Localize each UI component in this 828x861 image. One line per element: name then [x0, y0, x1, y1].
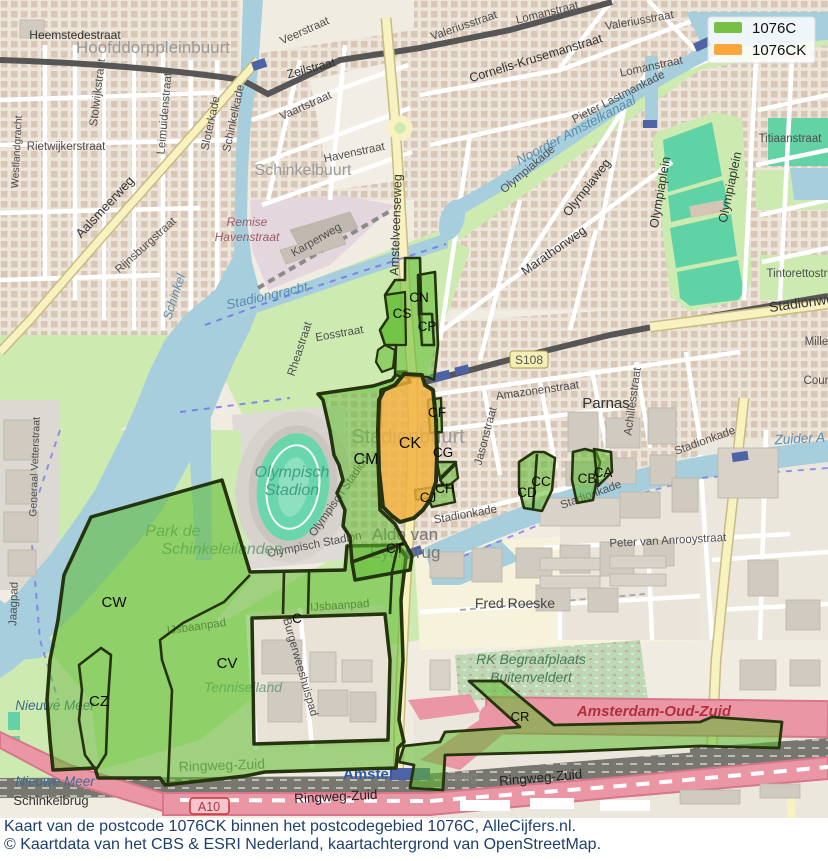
svg-text:Cour: Cour [804, 375, 828, 387]
svg-text:CV: CV [217, 655, 238, 672]
svg-text:CM: CM [354, 451, 379, 468]
svg-text:CR: CR [511, 709, 530, 724]
svg-text:Nieuwe Meer: Nieuwe Meer [15, 774, 95, 789]
svg-text:CW: CW [102, 594, 128, 611]
svg-text:CS: CS [393, 306, 412, 321]
svg-text:CN: CN [409, 290, 429, 305]
svg-text:Zuider A: Zuider A [773, 430, 825, 448]
svg-text:S108: S108 [515, 353, 543, 367]
svg-text:CJ: CJ [420, 490, 437, 505]
svg-text:CA: CA [594, 465, 613, 480]
svg-text:CT: CT [386, 541, 404, 556]
svg-text:CK: CK [399, 435, 422, 452]
svg-text:Heemstedestraat: Heemstedestraat [29, 28, 121, 42]
svg-text:Schinkelbuurt: Schinkelbuurt [255, 162, 353, 179]
svg-text:CH: CH [435, 481, 455, 496]
svg-text:CZ: CZ [89, 693, 109, 710]
svg-text:CP: CP [418, 319, 437, 334]
svg-text:Tintorettostraat: Tintorettostraat [767, 268, 828, 280]
svg-text:RK Begraafplaats: RK Begraafplaats [476, 651, 586, 667]
svg-text:A10: A10 [198, 800, 220, 814]
svg-text:Titiaanstraat: Titiaanstraat [759, 133, 823, 145]
svg-text:C: C [292, 611, 302, 626]
svg-text:Parnas: Parnas [582, 395, 630, 412]
svg-text:1076CK: 1076CK [752, 42, 806, 59]
svg-text:CC: CC [531, 474, 551, 489]
svg-text:Remise: Remise [227, 215, 268, 229]
svg-text:Jaagpad: Jaagpad [7, 582, 21, 627]
svg-text:Fred Roeske: Fred Roeske [475, 595, 555, 611]
svg-text:Millet: Millet [805, 336, 828, 348]
svg-text:Olympisch: Olympisch [255, 464, 330, 481]
svg-text:Rietwijkerstraat: Rietwijkerstraat [27, 141, 106, 153]
svg-text:CG: CG [433, 445, 453, 460]
svg-text:Schinkelbrug: Schinkelbrug [13, 793, 88, 808]
svg-text:Havenstraat: Havenstraat [215, 230, 280, 244]
svg-text:1076C: 1076C [752, 20, 796, 37]
svg-text:CF: CF [428, 405, 446, 420]
svg-text:Stadion: Stadion [265, 482, 319, 499]
